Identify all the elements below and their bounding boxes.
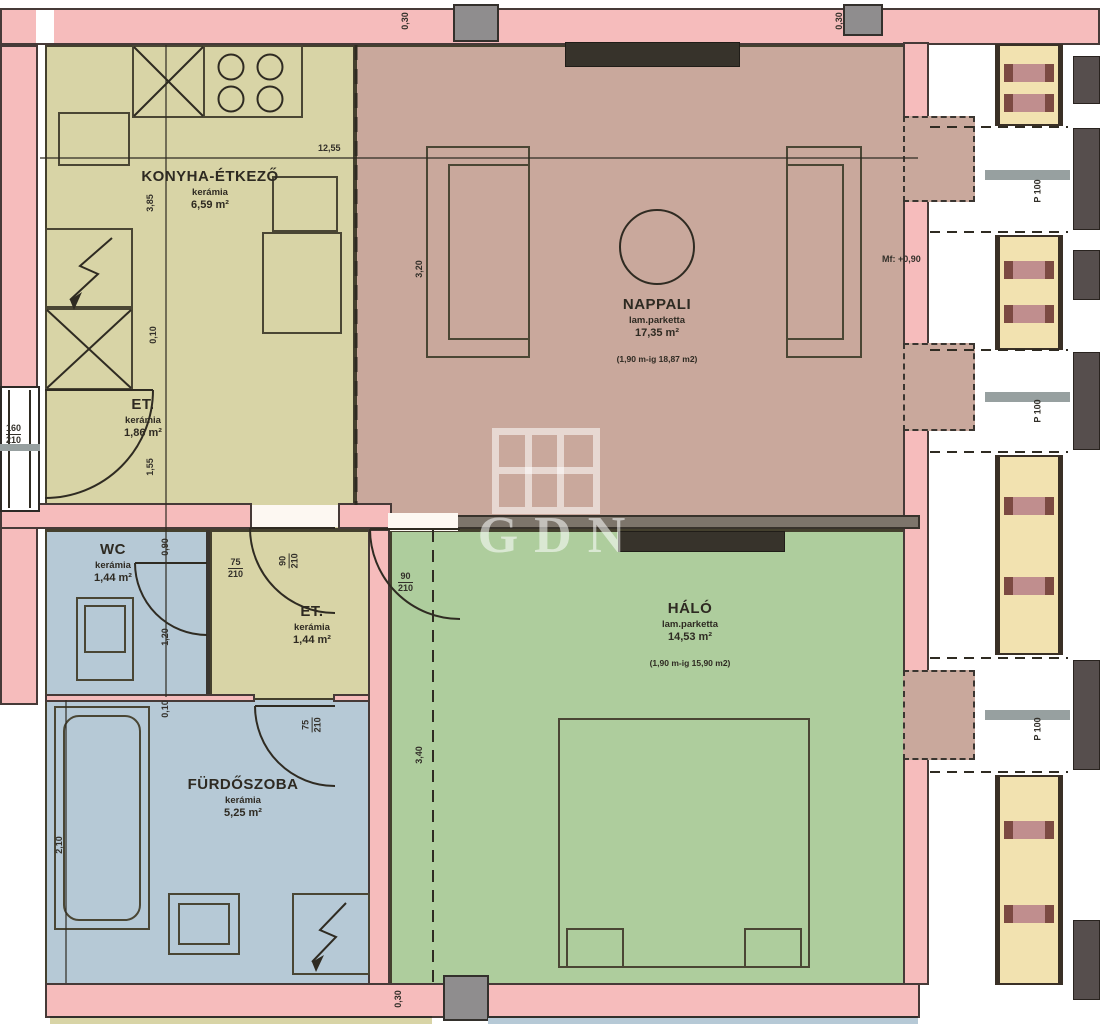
dim-living-1: 3,20 [414,260,424,278]
room-name: NAPPALI [617,296,698,315]
room-floor: lam.parketta [650,619,731,631]
room-floor: lam.parketta [617,315,698,327]
door-width: 75 [231,558,241,568]
room-name: WC [94,541,132,560]
dim-bath-2: 2,10 [54,836,64,854]
label-living: NAPPALI lam.parketta 17,35 m² (1,90 m-ig… [617,296,698,365]
dim-parapet-2: P 100 [1033,399,1043,422]
dim-kitchen-2: 0,10 [148,326,158,344]
room-area: 1,44 m² [94,572,132,586]
label-kitchen: KONYHA-ÉTKEZŐ kerámia 6,59 m² [141,168,278,212]
room-note: (1,90 m-ig 15,90 m2) [650,658,731,669]
boiler-arrow [70,238,112,300]
door-height: 210 [398,582,413,594]
label-bedroom: HÁLÓ lam.parketta 14,53 m² (1,90 m-ig 15… [650,600,731,669]
label-entry-left: ET. kerámia 1,86 m² [124,396,162,440]
dim-level-mark: Mf: +0,90 [882,254,921,264]
room-area: 1,86 m² [124,427,162,441]
door-size-bedroom: 90 210 [398,572,413,594]
door-arc-bedroom [370,529,460,619]
door-size-wc: 75 210 [228,558,243,580]
watermark-logo-icon [492,428,600,514]
dim-parapet-1: P 100 [1033,179,1043,202]
window-size-left: 160 210 [6,424,21,446]
room-floor: kerámia [94,560,132,572]
dim-kitchen-3: 1,55 [145,458,155,476]
door-height: 210 [312,717,324,732]
stove-burner [219,55,244,80]
room-floor: kerámia [293,622,331,634]
room-floor: kerámia [124,415,162,427]
dim-wc-2: 1,20 [160,628,170,646]
room-floor: kerámia [141,187,278,199]
dim-wall-bottom: 0,30 [393,990,403,1008]
floorplan-canvas: KONYHA-ÉTKEZŐ kerámia 6,59 m² ET. kerámi… [0,0,1100,1024]
dim-bedroom-1: 3,40 [414,746,424,764]
washer-arrow [312,903,346,962]
window-width: 160 [6,424,21,434]
room-note: (1,90 m-ig 18,87 m2) [617,354,698,365]
door-height: 210 [228,568,243,580]
window-height: 210 [6,434,21,446]
room-area: 6,59 m² [141,199,278,213]
room-name: HÁLÓ [650,600,731,619]
watermark-text: GDN [452,506,667,565]
label-entry-mid: ET. kerámia 1,44 m² [293,603,331,647]
door-arc-wc [135,563,207,635]
label-bathroom: FÜRDŐSZOBA kerámia 5,25 m² [188,776,299,820]
room-name: FÜRDŐSZOBA [188,776,299,795]
dim-parapet-3: P 100 [1033,717,1043,740]
washer-arrowhead [312,955,324,972]
door-arc-entry-mid [250,528,335,613]
label-wc: WC kerámia 1,44 m² [94,541,132,585]
room-area: 14,53 m² [650,631,731,645]
room-area: 17,35 m² [617,327,698,341]
room-area: 5,25 m² [188,807,299,821]
room-floor: kerámia [188,795,299,807]
dim-wall-top-right: 0,30 [834,12,844,30]
door-width: 75 [302,720,312,730]
door-width: 90 [401,572,411,582]
room-name: ET. [293,603,331,622]
room-name: KONYHA-ÉTKEZŐ [141,168,278,187]
door-height: 210 [289,553,301,568]
dim-wc-1: 0,90 [160,538,170,556]
dim-kitchen-1: 3,85 [145,194,155,212]
coffee-table [620,210,694,284]
dim-wall-top-left: 0,30 [400,12,410,30]
dim-bath-1: 0,10 [160,700,170,718]
door-size-entry-mid: 90 210 [279,553,301,568]
room-name: ET. [124,396,162,415]
door-width: 90 [279,556,289,566]
room-area: 1,44 m² [293,634,331,648]
door-size-bathroom: 75 210 [302,717,324,732]
dim-total-width: 12,55 [318,143,341,153]
